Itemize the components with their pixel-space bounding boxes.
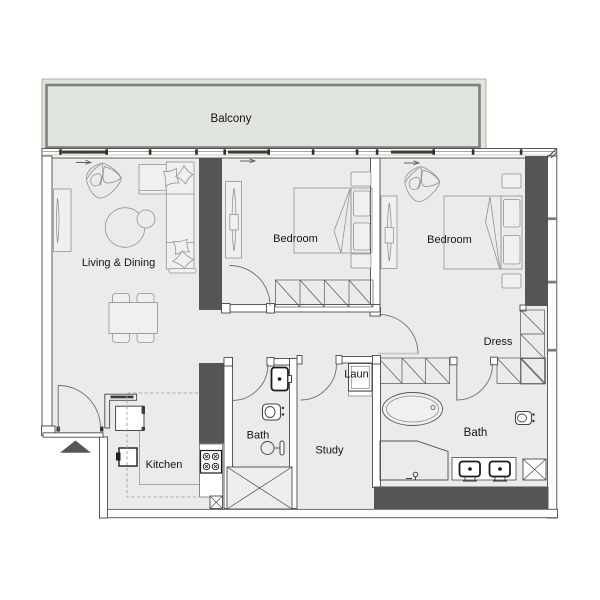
svg-text:Bath: Bath [247, 430, 270, 442]
svg-text:Study: Study [315, 445, 344, 457]
svg-text:Dress: Dress [484, 336, 513, 348]
svg-text:Kitchen: Kitchen [146, 459, 183, 471]
svg-text:Bath: Bath [464, 427, 488, 439]
svg-text:Laun: Laun [344, 369, 368, 381]
svg-text:Balcony: Balcony [211, 113, 252, 125]
svg-text:Living & Dining: Living & Dining [82, 257, 155, 269]
svg-text:Bedroom: Bedroom [427, 234, 472, 246]
svg-text:Bedroom: Bedroom [273, 233, 318, 245]
